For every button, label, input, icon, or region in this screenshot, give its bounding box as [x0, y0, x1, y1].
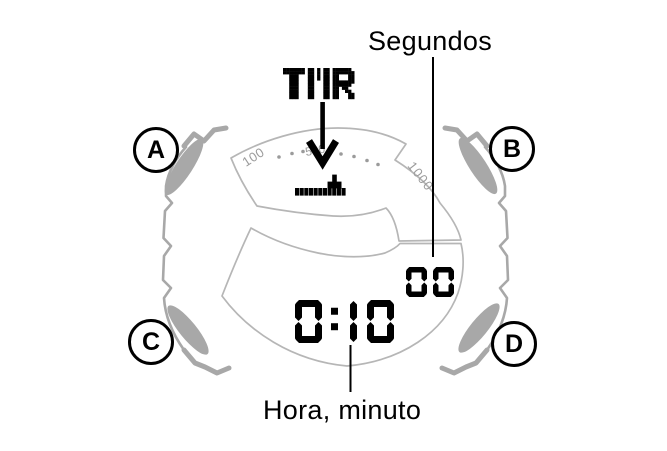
button-b-marker[interactable]: B: [489, 126, 535, 172]
mode-arrow-shaft: [320, 102, 325, 149]
watch-artwork: 100 500 1000: [0, 0, 667, 451]
button-c-marker[interactable]: C: [128, 319, 174, 365]
seconds-label: Segundos: [368, 26, 492, 57]
hour-minute-label: Hora, minuto: [263, 395, 421, 426]
button-a-marker[interactable]: A: [133, 127, 179, 173]
display-lower-window: [222, 228, 463, 366]
lug-bottom-right: [442, 350, 487, 373]
watch-diagram: 100 500 1000 A B C D Segundos Hora, minu…: [0, 0, 667, 451]
display-windows: [222, 128, 463, 366]
lug-top-left: [184, 128, 226, 146]
button-d-marker[interactable]: D: [491, 321, 537, 367]
mode-indicator-pixel-text: [283, 68, 355, 99]
